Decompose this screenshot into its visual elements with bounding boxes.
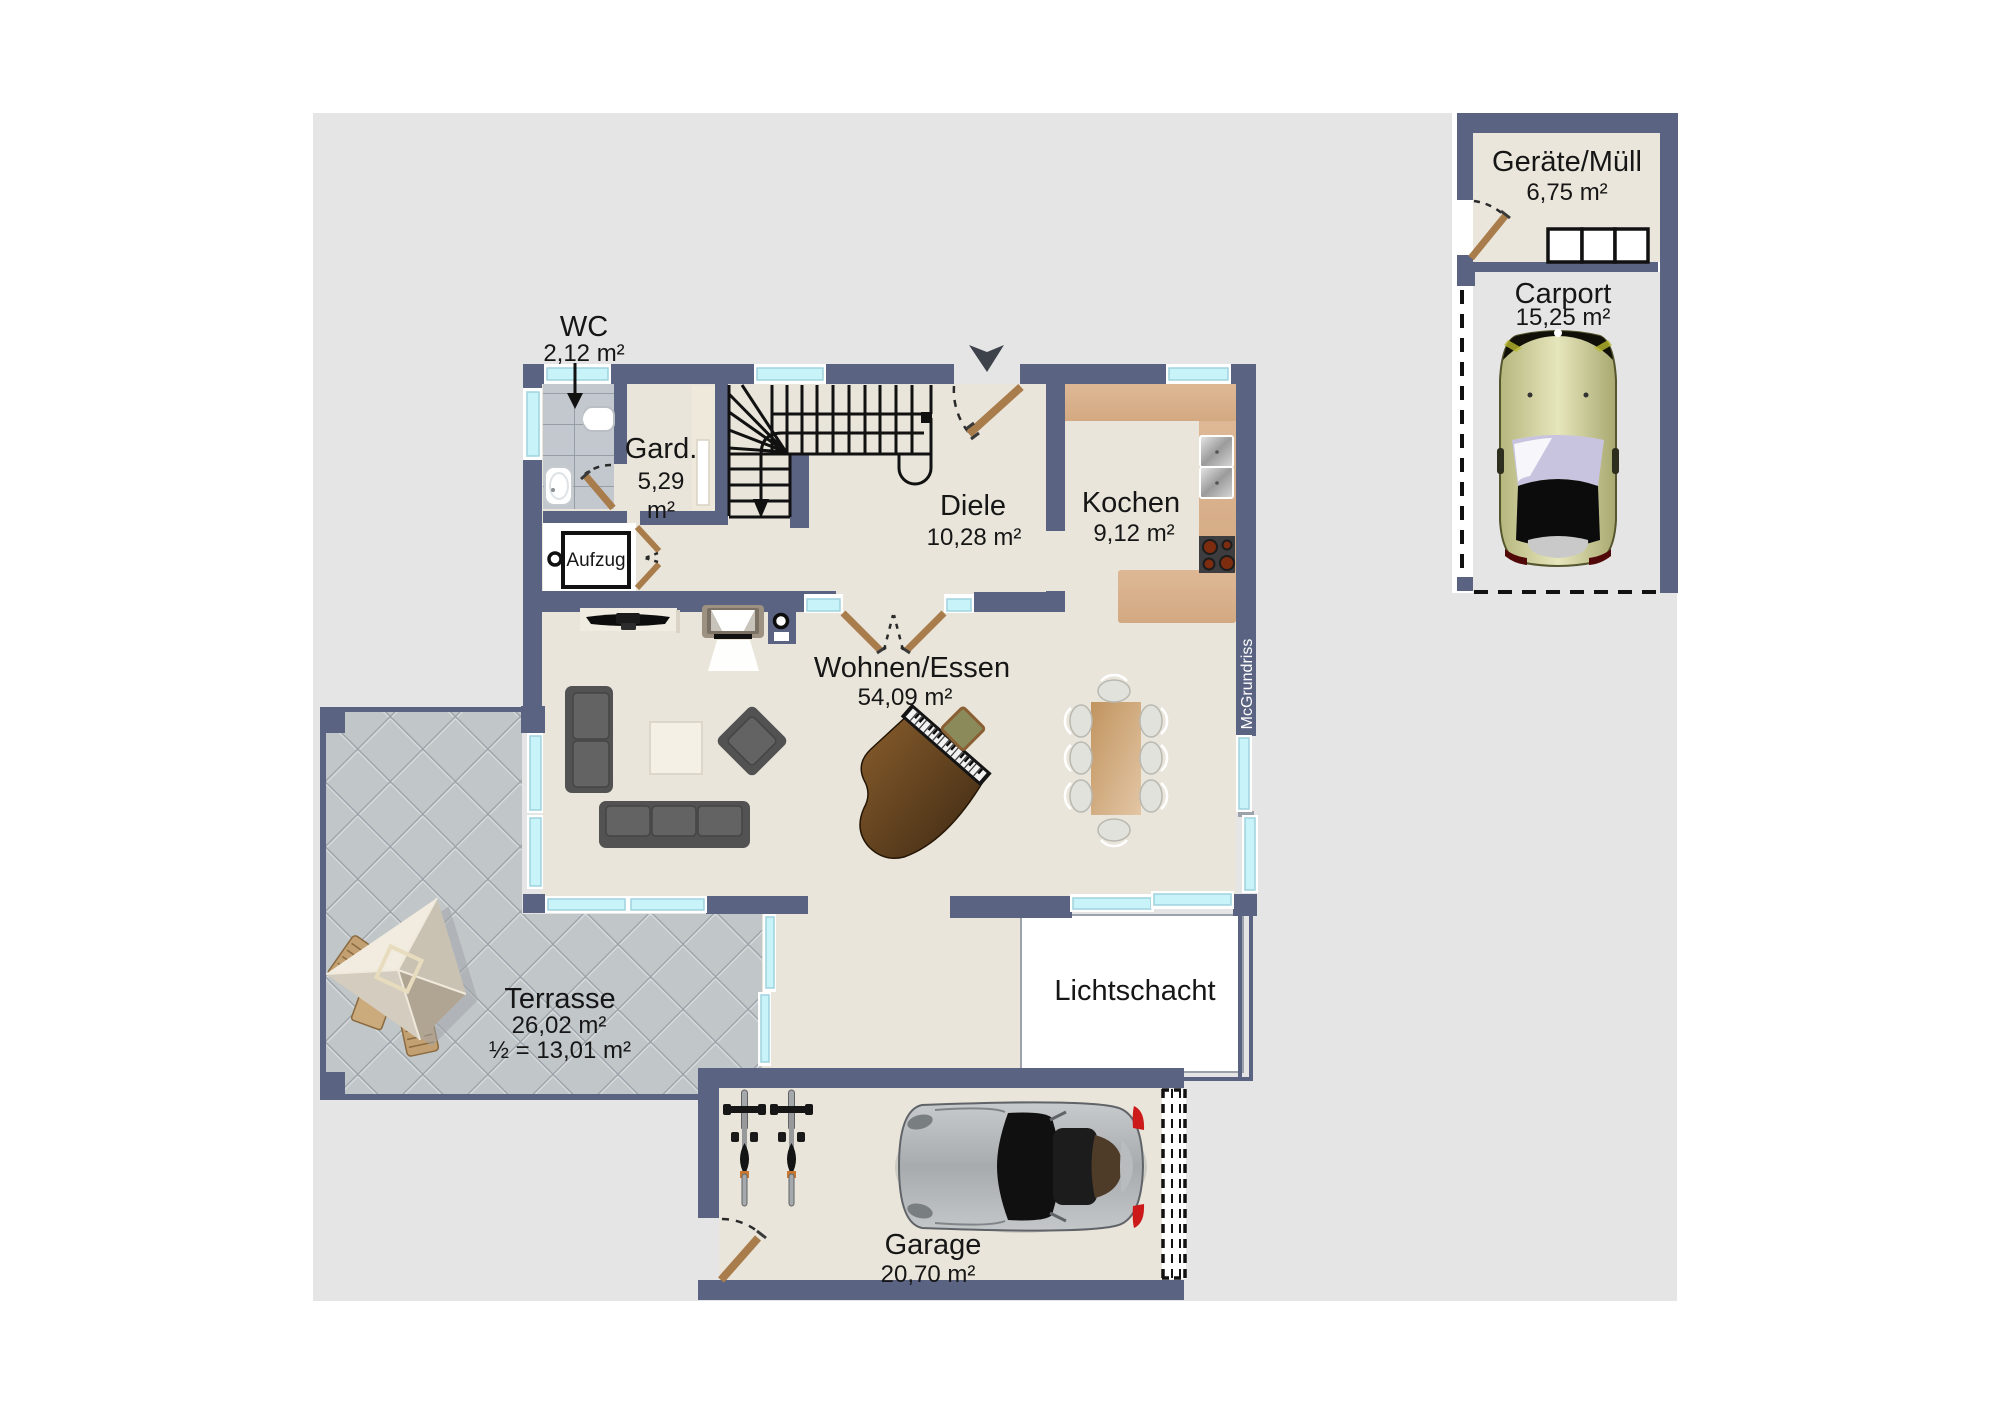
svg-text:Garage: Garage	[885, 1229, 982, 1261]
svg-text:2,12 m²: 2,12 m²	[543, 340, 624, 367]
svg-text:9,12 m²: 9,12 m²	[1093, 520, 1174, 547]
svg-text:15,25 m²: 15,25 m²	[1516, 304, 1611, 331]
svg-text:Diele: Diele	[940, 490, 1006, 522]
svg-text:½ = 13,01 m²: ½ = 13,01 m²	[489, 1037, 631, 1064]
svg-text:54,09 m²: 54,09 m²	[858, 684, 953, 711]
svg-text:McGrundriss: McGrundriss	[1239, 639, 1256, 730]
svg-text:Aufzug: Aufzug	[566, 550, 625, 571]
svg-text:Gard.: Gard.	[625, 433, 698, 465]
svg-text:20,70 m²: 20,70 m²	[881, 1261, 976, 1288]
svg-text:5,29: 5,29	[638, 468, 685, 495]
svg-text:26,02 m²: 26,02 m²	[512, 1012, 607, 1039]
svg-text:Lichtschacht: Lichtschacht	[1054, 975, 1215, 1007]
svg-text:Terrasse: Terrasse	[504, 983, 615, 1015]
svg-text:Geräte/Müll: Geräte/Müll	[1492, 146, 1642, 178]
svg-text:m²: m²	[647, 497, 675, 524]
svg-text:10,28 m²: 10,28 m²	[927, 524, 1022, 551]
svg-text:6,75 m²: 6,75 m²	[1526, 179, 1607, 206]
svg-text:Kochen: Kochen	[1082, 487, 1180, 519]
svg-text:WC: WC	[560, 311, 608, 343]
svg-text:Wohnen/Essen: Wohnen/Essen	[814, 652, 1010, 684]
